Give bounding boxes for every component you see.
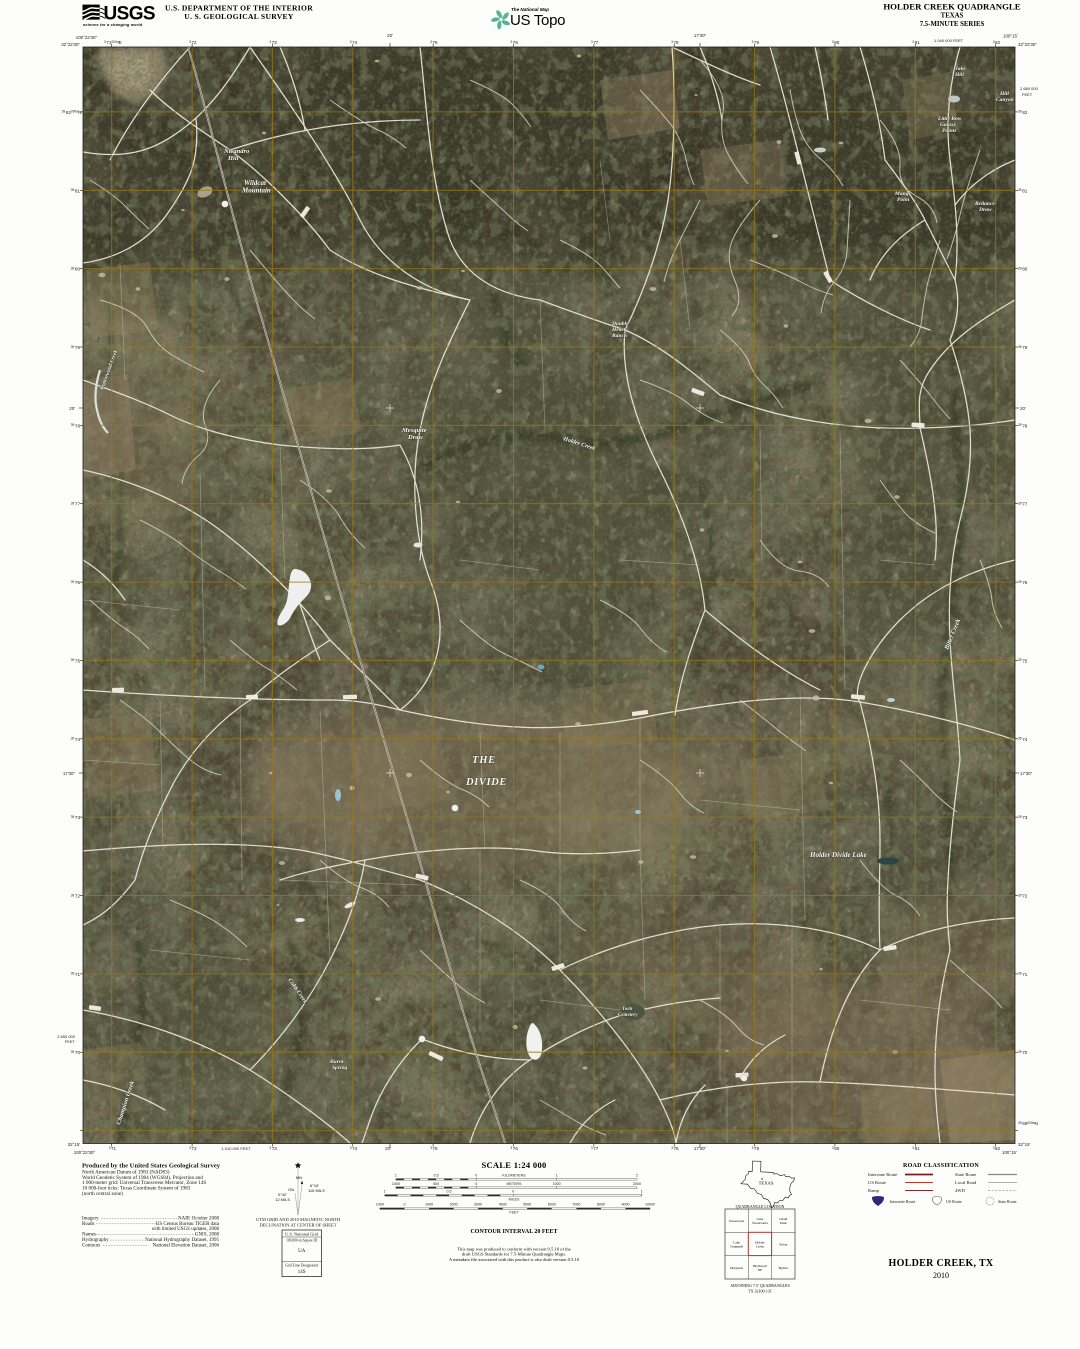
svg-text:82: 82 xyxy=(995,40,1001,45)
svg-text:100°22′30″: 100°22′30″ xyxy=(74,1150,96,1155)
svg-text:UA: UA xyxy=(298,1249,306,1254)
svg-text:Cemetery: Cemetery xyxy=(618,1013,638,1018)
svg-text:82: 82 xyxy=(995,1146,1001,1151)
svg-text:71: 71 xyxy=(1022,972,1028,977)
svg-text:74: 74 xyxy=(352,1146,358,1151)
svg-text:1: 1 xyxy=(395,1174,397,1178)
svg-text:1000: 1000 xyxy=(392,1182,400,1186)
svg-text:100°15′: 100°15′ xyxy=(1003,34,1018,39)
svg-text:100°15′: 100°15′ xyxy=(1002,1150,1017,1155)
svg-text:1: 1 xyxy=(641,1189,643,1193)
svg-text:Sweetwater: Sweetwater xyxy=(729,1219,746,1223)
svg-text:76: 76 xyxy=(75,580,81,585)
svg-text:Creek: Creek xyxy=(756,1244,764,1248)
svg-text:77: 77 xyxy=(593,40,599,45)
svg-text:UTM GRID AND 2010 MAGNETIC NOR: UTM GRID AND 2010 MAGNETIC NORTH xyxy=(256,1217,341,1222)
svg-text:N: N xyxy=(78,110,81,115)
svg-text:20′: 20′ xyxy=(69,406,75,411)
svg-text:77: 77 xyxy=(593,1146,599,1151)
svg-text:74: 74 xyxy=(1022,737,1028,742)
svg-text:Peak: Peak xyxy=(780,1221,787,1225)
svg-text:71: 71 xyxy=(75,972,81,977)
svg-text:20′: 20′ xyxy=(387,33,393,38)
svg-text:72: 72 xyxy=(1022,894,1028,899)
svg-text:77: 77 xyxy=(1022,502,1028,507)
svg-text:81: 81 xyxy=(75,188,81,193)
svg-text:2 680 000: 2 680 000 xyxy=(1020,86,1039,91)
svg-text:E: E xyxy=(119,40,122,45)
svg-text:Hydrography: Hydrography xyxy=(82,1238,109,1243)
svg-text:20′: 20′ xyxy=(385,1146,391,1151)
svg-text:METERS: METERS xyxy=(507,1182,523,1186)
svg-text:science for a changing world: science for a changing world xyxy=(83,22,143,27)
svg-text:1000: 1000 xyxy=(376,1203,384,1207)
svg-text:GNIS, 2008: GNIS, 2008 xyxy=(195,1233,220,1238)
svg-text:Hill: Hill xyxy=(227,155,239,162)
svg-text:Local Road: Local Road xyxy=(955,1180,977,1185)
svg-text:GN: GN xyxy=(288,1187,294,1192)
svg-text:0: 0 xyxy=(475,1174,477,1178)
svg-text:Points: Points xyxy=(942,128,956,134)
svg-text:78: 78 xyxy=(75,423,81,428)
svg-text:4WD: 4WD xyxy=(955,1188,966,1193)
svg-text:ROAD CLASSIFICATION: ROAD CLASSIFICATION xyxy=(903,1163,979,1169)
svg-text:70: 70 xyxy=(75,1050,81,1055)
svg-text:32°22′30″: 32°22′30″ xyxy=(1018,42,1037,47)
svg-text:US Census Bureau TIGER data: US Census Bureau TIGER data xyxy=(156,1222,220,1227)
svg-text:SCALE 1:24 000: SCALE 1:24 000 xyxy=(481,1160,546,1170)
svg-text:National Elevation Dataset, 20: National Elevation Dataset, 2006 xyxy=(153,1244,220,1249)
svg-text:1: 1 xyxy=(384,1189,386,1193)
svg-text:116 MILS: 116 MILS xyxy=(308,1188,325,1193)
svg-text:8000: 8000 xyxy=(597,1203,605,1207)
svg-text:(north central zone): (north central zone) xyxy=(82,1190,123,1197)
svg-text:TX 32100-131: TX 32100-131 xyxy=(748,1289,772,1294)
svg-text:72: 72 xyxy=(75,894,81,899)
svg-text:10000: 10000 xyxy=(645,1203,655,1207)
svg-text:79: 79 xyxy=(1022,345,1028,350)
svg-text:Interstate Route: Interstate Route xyxy=(890,1199,916,1204)
svg-text:0.5: 0.5 xyxy=(434,1174,439,1178)
svg-text:Names: Names xyxy=(82,1233,96,1238)
svg-text:U. S. GEOLOGICAL SURVEY: U. S. GEOLOGICAL SURVEY xyxy=(184,12,294,21)
svg-text:74: 74 xyxy=(352,40,358,45)
svg-text:HOLDER CREEK QUADRANGLE: HOLDER CREEK QUADRANGLE xyxy=(883,2,1020,12)
svg-text:DECLINATION AT CENTER OF SHEET: DECLINATION AT CENTER OF SHEET xyxy=(260,1223,337,1228)
svg-text:5000: 5000 xyxy=(523,1203,531,1207)
svg-text:2000: 2000 xyxy=(633,1182,641,1186)
svg-text:1 040 000 FEET: 1 040 000 FEET xyxy=(934,38,964,43)
svg-text:DIVIDE: DIVIDE xyxy=(465,777,507,788)
svg-text:4000: 4000 xyxy=(499,1203,507,1207)
svg-text:81: 81 xyxy=(1022,188,1028,193)
svg-text:73: 73 xyxy=(272,1146,278,1151)
svg-text:KILOMETERS: KILOMETERS xyxy=(502,1174,526,1178)
svg-text:2010: 2010 xyxy=(933,1271,949,1280)
svg-text:Twin: Twin xyxy=(622,1007,633,1012)
svg-text:78: 78 xyxy=(674,1146,680,1151)
svg-text:79: 79 xyxy=(75,345,81,350)
svg-text:73: 73 xyxy=(75,815,81,820)
svg-text:N: N xyxy=(1035,1121,1038,1126)
svg-text:Draw: Draw xyxy=(978,207,992,213)
svg-text:0: 0 xyxy=(512,1189,514,1193)
svg-text:Interstate Route: Interstate Route xyxy=(868,1172,897,1177)
svg-text:2: 2 xyxy=(636,1174,638,1178)
svg-text:6000: 6000 xyxy=(548,1203,556,1207)
svg-text:US Route: US Route xyxy=(946,1199,962,1204)
svg-text:State Route: State Route xyxy=(955,1172,976,1177)
svg-text:100°22′30″: 100°22′30″ xyxy=(76,35,98,40)
svg-text:NE: NE xyxy=(758,1268,763,1272)
svg-text:32°22′30″: 32°22′30″ xyxy=(61,42,80,47)
svg-text:Mesquite: Mesquite xyxy=(401,427,427,434)
svg-text:Nicandro: Nicandro xyxy=(223,148,250,155)
svg-text:9000: 9000 xyxy=(622,1203,630,1207)
svg-text:17′30″: 17′30″ xyxy=(1020,771,1033,776)
svg-text:81: 81 xyxy=(915,1146,921,1151)
svg-text:U.S. National Grid: U.S. National Grid xyxy=(285,1232,319,1237)
svg-text:7000: 7000 xyxy=(572,1203,580,1207)
svg-text:72: 72 xyxy=(191,1146,197,1151)
svg-text:Sweetwater: Sweetwater xyxy=(752,1221,769,1225)
svg-text:Trammell: Trammell xyxy=(730,1244,743,1248)
svg-text:71: 71 xyxy=(111,1146,117,1151)
svg-text:Maryneal: Maryneal xyxy=(730,1266,743,1270)
svg-text:79: 79 xyxy=(754,40,760,45)
svg-text:3000: 3000 xyxy=(474,1203,482,1207)
svg-text:Grid Zone Designation: Grid Zone Designation xyxy=(285,1264,318,1268)
svg-text:20′: 20′ xyxy=(1020,406,1026,411)
svg-text:1: 1 xyxy=(556,1174,558,1178)
svg-text:75: 75 xyxy=(75,658,81,663)
svg-text:81: 81 xyxy=(915,40,921,45)
svg-text:Imagery: Imagery xyxy=(82,1216,99,1221)
svg-text:79: 79 xyxy=(754,1146,760,1151)
svg-text:Holder Divide Lake: Holder Divide Lake xyxy=(809,851,867,859)
svg-text:Mountain: Mountain xyxy=(241,187,271,195)
svg-text:HOLDER CREEK, TX: HOLDER CREEK, TX xyxy=(889,1258,994,1269)
svg-text:76: 76 xyxy=(513,40,519,45)
svg-text:0: 0 xyxy=(404,1203,406,1207)
svg-text:14S: 14S xyxy=(298,1270,306,1275)
svg-text:Roads: Roads xyxy=(82,1222,95,1227)
svg-text:500: 500 xyxy=(433,1182,439,1186)
svg-text:THE: THE xyxy=(472,755,496,766)
svg-text:17′30″: 17′30″ xyxy=(694,33,707,38)
svg-text:1000: 1000 xyxy=(553,1182,561,1186)
svg-text:76: 76 xyxy=(1022,580,1028,585)
svg-text:MILES: MILES xyxy=(509,1197,520,1201)
svg-text:Spring: Spring xyxy=(332,1065,348,1071)
svg-text:77: 77 xyxy=(75,502,81,507)
svg-text:FEET: FEET xyxy=(509,1211,519,1215)
svg-text:Point: Point xyxy=(897,197,910,203)
svg-text:Draw: Draw xyxy=(407,434,423,441)
svg-text:78: 78 xyxy=(1022,423,1028,428)
svg-text:2000: 2000 xyxy=(450,1203,458,1207)
svg-text:12 MILS: 12 MILS xyxy=(275,1197,290,1202)
svg-text:75: 75 xyxy=(1022,658,1028,663)
svg-text:FEET: FEET xyxy=(65,1039,76,1044)
svg-text:Contours: Contours xyxy=(82,1244,100,1249)
svg-text:70: 70 xyxy=(1022,1050,1028,1055)
svg-text:ADJOINING 7.5′ QUADRANGLES: ADJOINING 7.5′ QUADRANGLES xyxy=(730,1283,789,1288)
svg-text:1 010 000 FEET: 1 010 000 FEET xyxy=(221,1146,251,1151)
svg-text:17′30″: 17′30″ xyxy=(63,771,76,776)
svg-text:75: 75 xyxy=(432,40,438,45)
svg-text:76: 76 xyxy=(513,1146,519,1151)
svg-text:72: 72 xyxy=(191,40,197,45)
svg-text:with limited USGS updates, 200: with limited USGS updates, 2008 xyxy=(152,1227,220,1232)
svg-text:17′30″: 17′30″ xyxy=(694,1146,707,1151)
svg-text:1000: 1000 xyxy=(425,1203,433,1207)
svg-text:78: 78 xyxy=(674,40,680,45)
svg-text:80: 80 xyxy=(834,1146,840,1151)
svg-text:US Route: US Route xyxy=(868,1180,886,1185)
svg-text:0.5: 0.5 xyxy=(447,1189,452,1193)
svg-text:74: 74 xyxy=(75,737,81,742)
svg-text:MN: MN xyxy=(296,1175,302,1180)
svg-text:75: 75 xyxy=(432,1146,438,1151)
svg-text:0: 0 xyxy=(475,1182,477,1186)
svg-text:QUADRANGLE LOCATION: QUADRANGLE LOCATION xyxy=(736,1204,785,1209)
svg-text:TEXAS: TEXAS xyxy=(759,1181,774,1186)
svg-text:82: 82 xyxy=(1022,110,1028,115)
svg-text:Hylton: Hylton xyxy=(779,1266,789,1270)
svg-text:32°15′: 32°15′ xyxy=(68,1142,81,1147)
svg-text:7.5-MINUTE SERIES: 7.5-MINUTE SERIES xyxy=(920,21,985,28)
svg-text:National Hydrography Dataset,: National Hydrography Dataset, 1995 xyxy=(145,1238,219,1243)
svg-text:Ranch: Ranch xyxy=(611,333,627,339)
svg-text:NAIP, October 2008: NAIP, October 2008 xyxy=(178,1216,219,1221)
svg-text:CONTOUR INTERVAL 20 FEET: CONTOUR INTERVAL 20 FEET xyxy=(470,1229,557,1235)
svg-text:Hill: Hill xyxy=(954,72,964,78)
svg-text:73: 73 xyxy=(272,40,278,45)
svg-text:Nolan: Nolan xyxy=(779,1242,788,1246)
svg-text:TEXAS: TEXAS xyxy=(941,13,964,20)
svg-text:US Topo: US Topo xyxy=(510,12,565,29)
svg-text:80: 80 xyxy=(1022,267,1028,272)
svg-text:73: 73 xyxy=(1022,815,1028,820)
svg-text:A metadata file associated wit: A metadata file associated with this pro… xyxy=(449,1257,580,1262)
svg-text:80: 80 xyxy=(834,40,840,45)
svg-text:State Route: State Route xyxy=(998,1199,1017,1204)
svg-text:80: 80 xyxy=(75,267,81,272)
svg-text:Ramp: Ramp xyxy=(868,1188,880,1193)
svg-text:Canyon: Canyon xyxy=(996,97,1014,103)
svg-text:32°15′: 32°15′ xyxy=(1018,1142,1031,1147)
svg-text:FEET: FEET xyxy=(1022,92,1033,97)
